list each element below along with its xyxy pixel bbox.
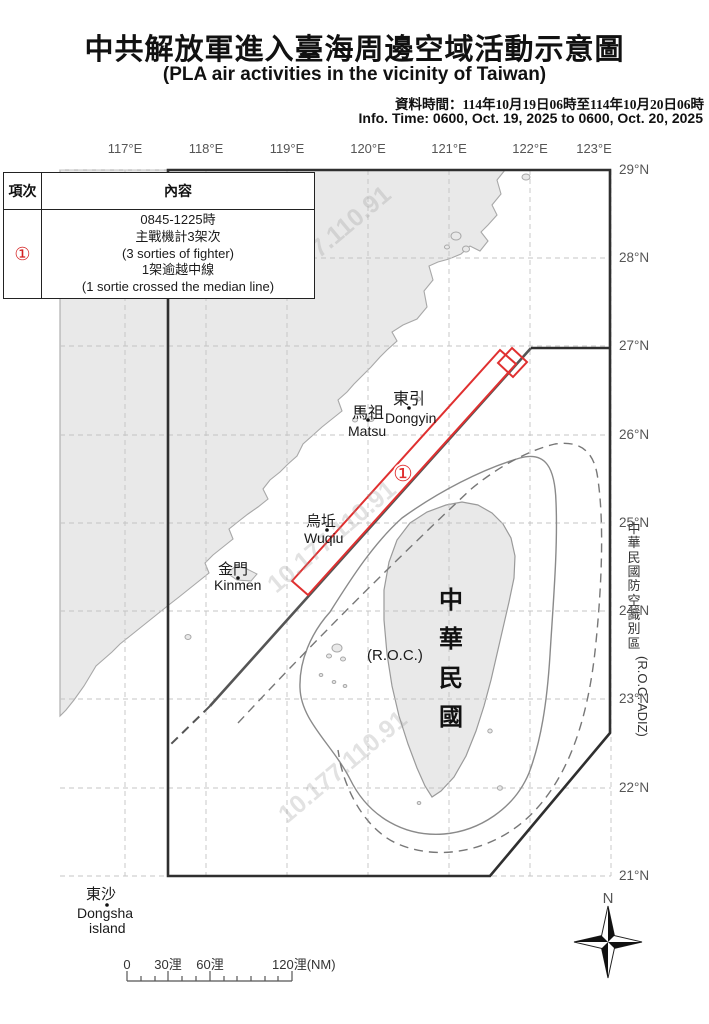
label-dongyin-en: Dongyin <box>385 410 436 426</box>
activity-marker: ① <box>393 461 413 486</box>
longitude-labels: 117°E 118°E 119°E 120°E 121°E 122°E 123°… <box>108 141 612 156</box>
row-content: 0845-1225時 主戰機計3架次 (3 sorties of fighter… <box>42 210 314 298</box>
lon-label: 120°E <box>350 141 386 156</box>
median-cross-zh: 1架逾越中線 <box>142 262 214 279</box>
taiwan-char: 民 <box>439 666 463 692</box>
table-row: ① 0845-1225時 主戰機計3架次 (3 sorties of fight… <box>4 210 314 298</box>
label-kinmen-zh: 金門 <box>218 561 248 578</box>
row-number-badge: ① <box>4 210 42 298</box>
label-wuqiu-zh: 烏坵 <box>306 513 336 530</box>
scale-label-60: 60浬 <box>196 957 223 972</box>
median-line-dashed-extension <box>168 706 210 747</box>
lat-label: 22°N <box>619 780 649 795</box>
adiz-char: 華 <box>627 535 640 550</box>
sortie-count-zh: 主戰機計3架次 <box>135 229 220 246</box>
table-header-row: 項次 內容 <box>4 173 314 210</box>
scale-label-30: 30浬 <box>154 957 181 972</box>
table-header-item: 項次 <box>4 173 42 209</box>
lat-label: 21°N <box>619 868 649 883</box>
table-header-content: 內容 <box>42 173 314 209</box>
lon-label: 117°E <box>108 141 143 156</box>
lon-label: 119°E <box>270 141 305 156</box>
sortie-count-en: (3 sorties of fighter) <box>122 246 234 263</box>
lat-label: 26°N <box>619 427 649 442</box>
compass-north-label: N <box>603 890 614 907</box>
adiz-char: 民 <box>627 550 640 565</box>
scale-bar-labels: 0 30浬 60浬 120浬(NM) <box>123 957 335 972</box>
label-roc-paren: (R.O.C.) <box>367 647 423 664</box>
adiz-char: 別 <box>627 621 640 636</box>
lon-label: 118°E <box>189 141 224 156</box>
lon-label: 122°E <box>512 141 548 156</box>
adiz-char: 防 <box>627 578 640 593</box>
latitude-labels: 29°N 28°N 27°N 26°N 25°N 24°N 23°N 22°N … <box>619 162 649 883</box>
lat-label: 28°N <box>619 250 649 265</box>
sortie-time: 0845-1225時 <box>140 212 215 229</box>
taiwan-char: 國 <box>439 705 463 731</box>
map-svg: 10.177.110.91 10.177.110.91 10.177.110.9… <box>0 0 709 1024</box>
scale-label-120: 120浬(NM) <box>272 957 336 972</box>
scale-label-0: 0 <box>123 957 130 972</box>
watermark-text: 10.177.110.91 <box>273 705 412 828</box>
label-dongsha-island: island <box>89 920 126 936</box>
lon-label: 123°E <box>576 141 612 156</box>
label-dongsha-zh: 東沙 <box>86 886 116 903</box>
label-mazu-en: Matsu <box>348 423 386 439</box>
label-dongyin-zh: 東引 <box>393 390 425 408</box>
lat-label: 23°N <box>619 691 649 706</box>
pla-activity-map-page: 中共解放軍進入臺海周邊空域活動示意圖 (PLA air activities i… <box>0 0 709 1024</box>
adiz-char: 國 <box>627 564 640 579</box>
label-mazu-zh: 馬祖 <box>352 404 384 422</box>
median-cross-en: (1 sortie crossed the median line) <box>82 279 274 296</box>
lat-label: 25°N <box>619 515 649 530</box>
taiwan-char: 中 <box>439 587 463 614</box>
compass-rose: N <box>574 890 642 978</box>
scale-bar <box>127 971 292 981</box>
lon-label: 121°E <box>431 141 467 156</box>
adiz-char: 區 <box>627 636 640 651</box>
label-kinmen-en: Kinmen <box>214 577 261 593</box>
label-dongsha-en: Dongsha <box>77 905 133 921</box>
lat-label: 27°N <box>619 338 649 353</box>
lat-label: 24°N <box>619 603 649 618</box>
sortie-summary-table: 項次 內容 ① 0845-1225時 主戰機計3架次 (3 sorties of… <box>3 172 315 299</box>
lat-label: 29°N <box>619 162 649 177</box>
label-wuqiu-en: Wuqiu <box>304 530 343 546</box>
taiwan-char: 華 <box>439 626 463 653</box>
